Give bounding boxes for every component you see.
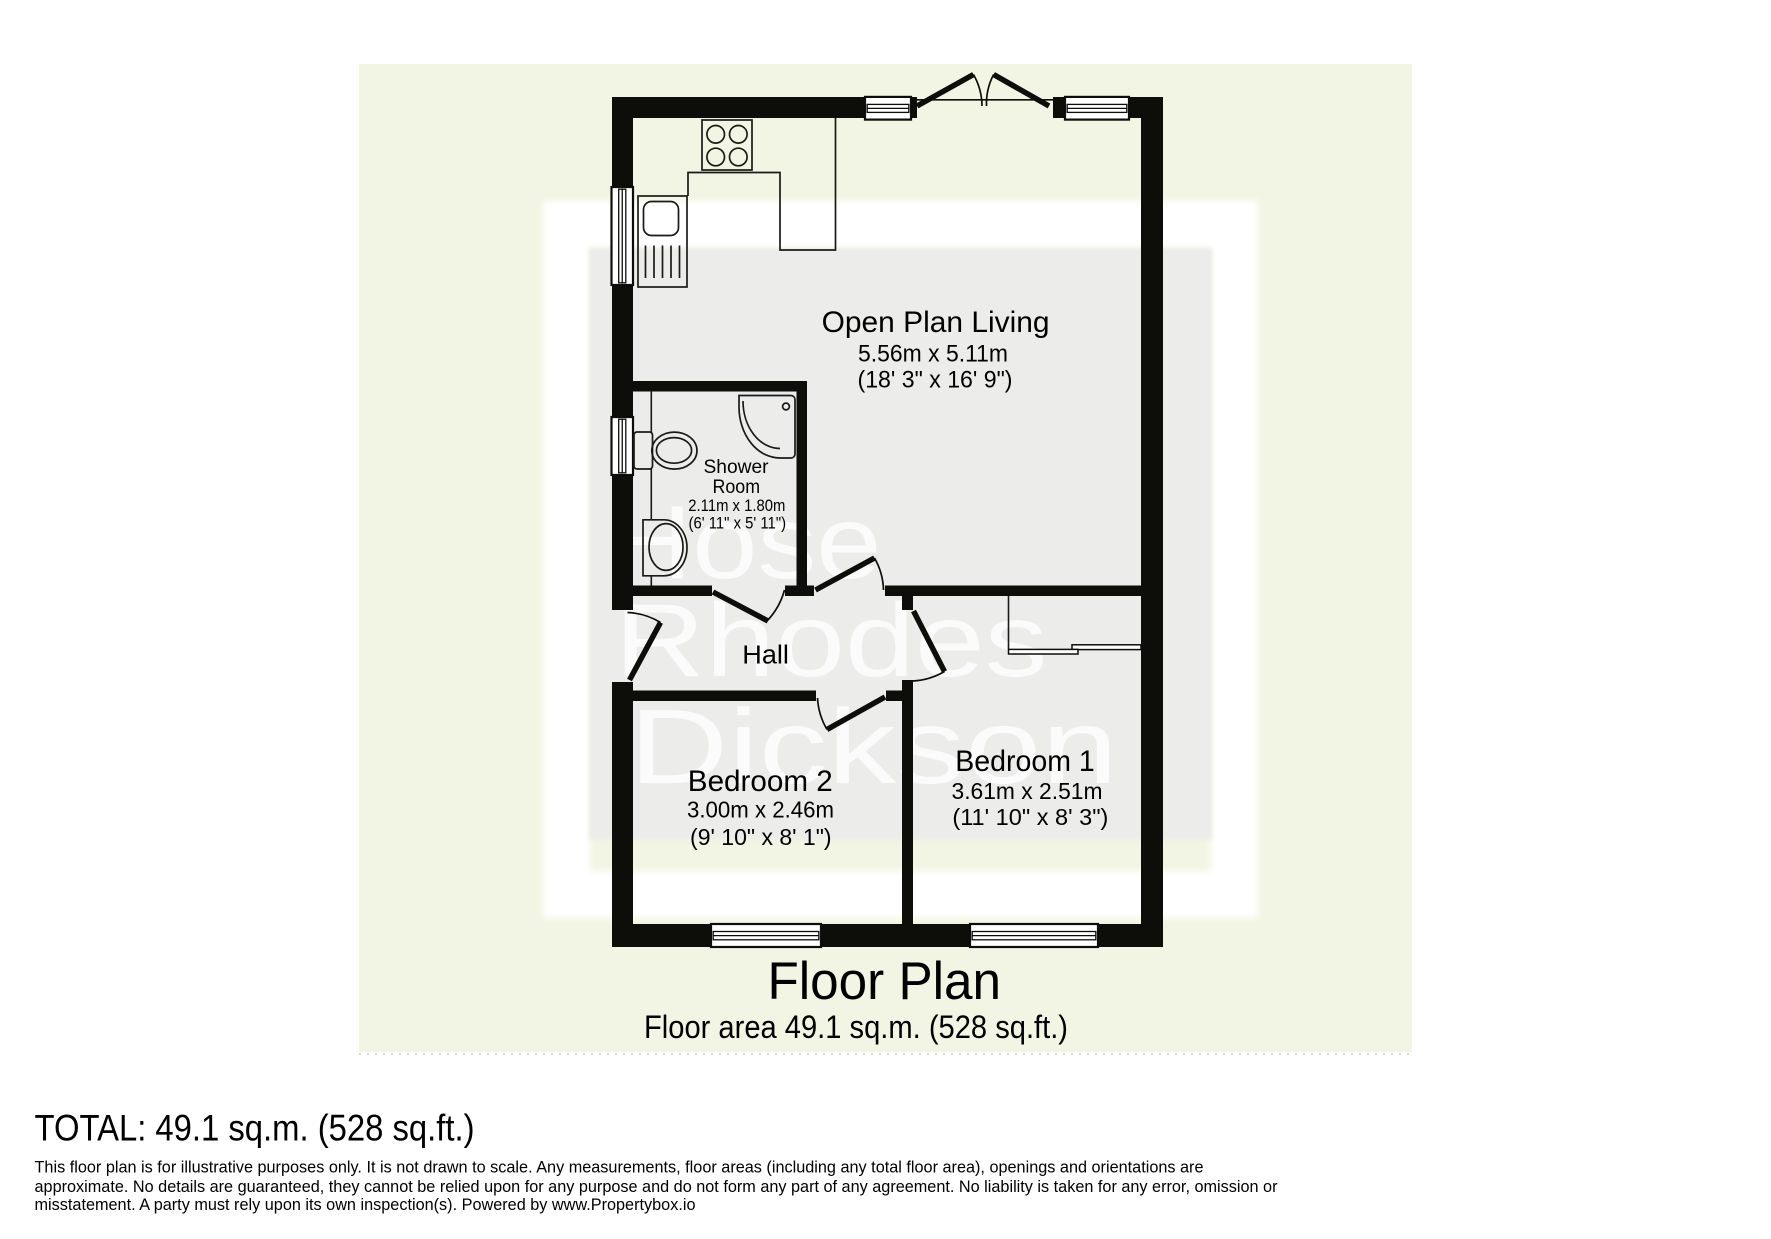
- svg-text:Rhodes: Rhodes: [615, 583, 1048, 699]
- svg-text:Hall: Hall: [742, 642, 789, 670]
- svg-text:(11' 10" x 8' 3"): (11' 10" x 8' 3"): [952, 804, 1108, 830]
- svg-text:(6' 11" x 5' 11"): (6' 11" x 5' 11"): [689, 513, 787, 532]
- svg-text:Open Plan Living: Open Plan Living: [822, 306, 1050, 339]
- svg-text:5.56m x 5.11m: 5.56m x 5.11m: [858, 341, 1008, 368]
- svg-text:Shower: Shower: [704, 456, 769, 478]
- svg-text:Floor Plan: Floor Plan: [768, 952, 1002, 1011]
- svg-text:This floor plan is for illustr: This floor plan is for illustrative purp…: [35, 1158, 1204, 1176]
- svg-text:TOTAL: 49.1 sq.m. (528 sq.ft.): TOTAL: 49.1 sq.m. (528 sq.ft.): [35, 1108, 475, 1149]
- svg-text:approximate. No details are gu: approximate. No details are guaranteed, …: [35, 1178, 1278, 1196]
- svg-text:Bedroom 2: Bedroom 2: [688, 765, 833, 798]
- svg-text:Room: Room: [713, 476, 761, 498]
- svg-text:(18' 3" x 16' 9"): (18' 3" x 16' 9"): [858, 367, 1013, 394]
- svg-text:(9' 10" x 8' 1"): (9' 10" x 8' 1"): [690, 824, 832, 850]
- svg-text:3.61m x 2.51m: 3.61m x 2.51m: [952, 778, 1103, 804]
- svg-text:misstatement. A party must rel: misstatement. A party must rely upon its…: [35, 1196, 696, 1214]
- svg-text:2.11m x 1.80m: 2.11m x 1.80m: [688, 496, 785, 515]
- svg-text:Bedroom 1: Bedroom 1: [955, 745, 1095, 778]
- svg-text:Floor area 49.1 sq.m. (528 sq.: Floor area 49.1 sq.m. (528 sq.ft.): [644, 1009, 1068, 1045]
- svg-text:3.00m x 2.46m: 3.00m x 2.46m: [687, 796, 834, 822]
